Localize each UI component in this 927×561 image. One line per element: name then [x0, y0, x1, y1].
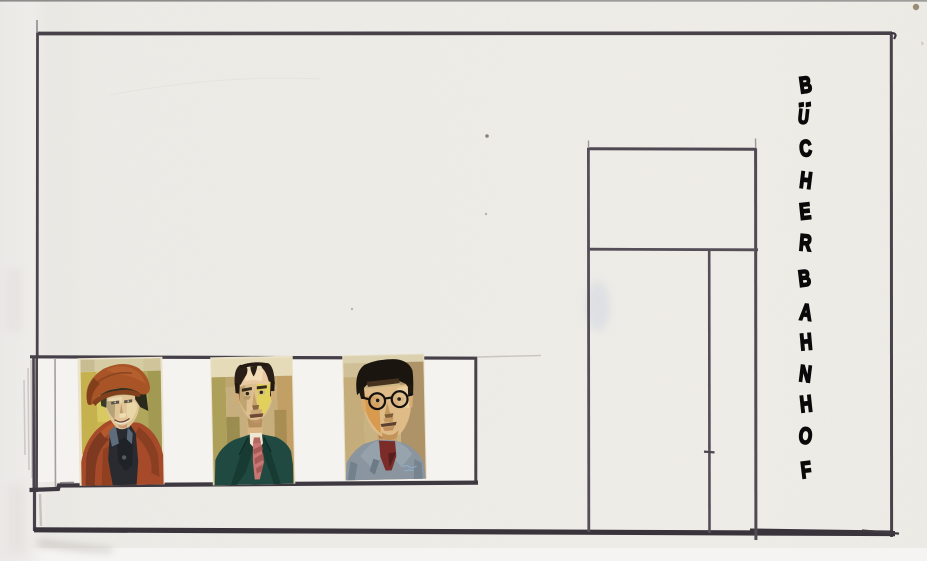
svg-text:O: O: [798, 424, 813, 450]
svg-text:R: R: [798, 231, 813, 257]
svg-text:H: H: [799, 330, 813, 356]
svg-text:C: C: [798, 136, 813, 162]
svg-text:H: H: [799, 392, 814, 418]
